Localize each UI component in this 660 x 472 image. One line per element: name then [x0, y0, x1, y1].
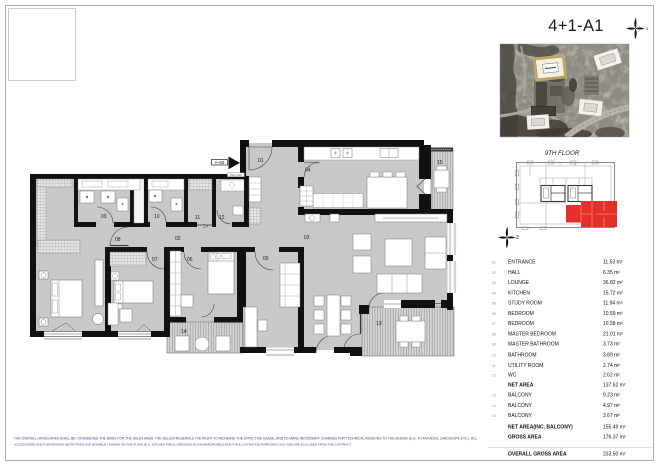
svg-text:09: 09 — [101, 214, 107, 220]
svg-text:KITCHEN: KITCHEN — [508, 290, 530, 296]
svg-text:02: 02 — [492, 271, 496, 275]
svg-text:4.97 m²: 4.97 m² — [603, 403, 620, 409]
svg-text:155.49 m²: 155.49 m² — [603, 424, 626, 430]
svg-text:NET AREA: NET AREA — [508, 383, 534, 389]
svg-text:2.62 m²: 2.62 m² — [603, 372, 620, 378]
svg-text:z: z — [516, 235, 519, 241]
svg-text:137.62 m²: 137.62 m² — [603, 383, 626, 389]
svg-text:09: 09 — [492, 343, 496, 347]
svg-text:MASTER BEDROOM: MASTER BEDROOM — [508, 331, 556, 337]
svg-text:BALCONY: BALCONY — [508, 413, 533, 419]
svg-text:36.82 m²: 36.82 m² — [603, 280, 623, 286]
svg-text:03: 03 — [304, 235, 310, 241]
svg-text:3.73 m²: 3.73 m² — [603, 342, 620, 348]
svg-text:THE OVERALL GROSS AREA SHALL B: THE OVERALL GROSS AREA SHALL BE CONSIDER… — [14, 437, 477, 441]
svg-text:10.58 m²: 10.58 m² — [603, 321, 623, 327]
svg-text:04: 04 — [305, 168, 311, 174]
svg-text:BEDROOM: BEDROOM — [508, 311, 534, 317]
svg-text:02: 02 — [175, 236, 181, 242]
svg-text:2.74 m²: 2.74 m² — [603, 363, 620, 369]
svg-text:13: 13 — [492, 394, 496, 398]
svg-text:03: 03 — [492, 281, 496, 285]
svg-text:11.53 m²: 11.53 m² — [603, 260, 623, 266]
svg-text:STUDY ROOM: STUDY ROOM — [508, 301, 542, 307]
svg-text:HALL: HALL — [508, 270, 521, 276]
svg-text:NET AREA(INC. BALCONY): NET AREA(INC. BALCONY) — [508, 424, 573, 430]
svg-text:13: 13 — [376, 321, 382, 327]
svg-text:ACCESSORIES AND FURNISHINGS (B: ACCESSORIES AND FURNISHINGS (BOTH FIXED … — [14, 443, 351, 447]
svg-text:05: 05 — [263, 256, 269, 262]
svg-text:10.59 m²: 10.59 m² — [603, 311, 623, 317]
svg-text:MASTER BATHROOM: MASTER BATHROOM — [508, 342, 559, 348]
svg-text:12: 12 — [492, 373, 496, 377]
svg-text:21.01 m²: 21.01 m² — [603, 331, 623, 337]
svg-text:15: 15 — [492, 414, 496, 418]
svg-text:6.35 m²: 6.35 m² — [603, 270, 620, 276]
svg-text:UTILITY ROOM: UTILITY ROOM — [508, 363, 543, 369]
svg-text:15.72 m²: 15.72 m² — [603, 290, 623, 296]
svg-text:01: 01 — [258, 158, 264, 164]
svg-text:12: 12 — [219, 215, 225, 221]
svg-text:11: 11 — [195, 215, 200, 221]
svg-text:OVERALL GROSS AREA: OVERALL GROSS AREA — [508, 451, 567, 457]
svg-text:14: 14 — [492, 404, 496, 408]
svg-text:BATHROOM: BATHROOM — [508, 353, 537, 359]
svg-text:ENTRANCE: ENTRANCE — [508, 260, 536, 266]
svg-text:01: 01 — [492, 261, 496, 265]
svg-text:BALCONY: BALCONY — [508, 393, 533, 399]
svg-text:GROSS AREA: GROSS AREA — [508, 435, 542, 441]
svg-text:07: 07 — [492, 322, 496, 326]
svg-text:06: 06 — [492, 312, 496, 316]
svg-text:05: 05 — [492, 302, 496, 306]
svg-text:A-50: A-50 — [215, 160, 225, 165]
svg-text:3.67 m²: 3.67 m² — [603, 413, 620, 419]
svg-text:11.94 m²: 11.94 m² — [603, 301, 623, 307]
svg-text:4+1-A1: 4+1-A1 — [548, 17, 603, 35]
svg-text:10: 10 — [154, 214, 160, 220]
svg-text:08: 08 — [115, 237, 121, 243]
svg-text:04: 04 — [492, 291, 496, 295]
svg-text:14: 14 — [181, 329, 187, 335]
svg-text:11: 11 — [492, 364, 496, 368]
svg-text:15: 15 — [437, 160, 443, 166]
svg-text:9TH FLOOR: 9TH FLOOR — [545, 150, 580, 157]
svg-text:10: 10 — [492, 354, 496, 358]
svg-text:Daire Girisi: Daire Girisi — [230, 174, 242, 177]
svg-text:3.89 m²: 3.89 m² — [603, 353, 620, 359]
svg-text:BALCONY: BALCONY — [508, 403, 533, 409]
svg-text:176.37 m²: 176.37 m² — [603, 435, 626, 441]
svg-text:9.23 m²: 9.23 m² — [603, 393, 620, 399]
svg-text:06: 06 — [187, 257, 193, 263]
svg-text:LOUNGE: LOUNGE — [508, 280, 530, 286]
svg-text:WC: WC — [508, 372, 517, 378]
svg-text:07: 07 — [152, 257, 158, 263]
svg-text:08: 08 — [492, 332, 496, 336]
svg-text:BEDROOM: BEDROOM — [508, 321, 534, 327]
svg-text:233.50 m²: 233.50 m² — [603, 451, 626, 457]
